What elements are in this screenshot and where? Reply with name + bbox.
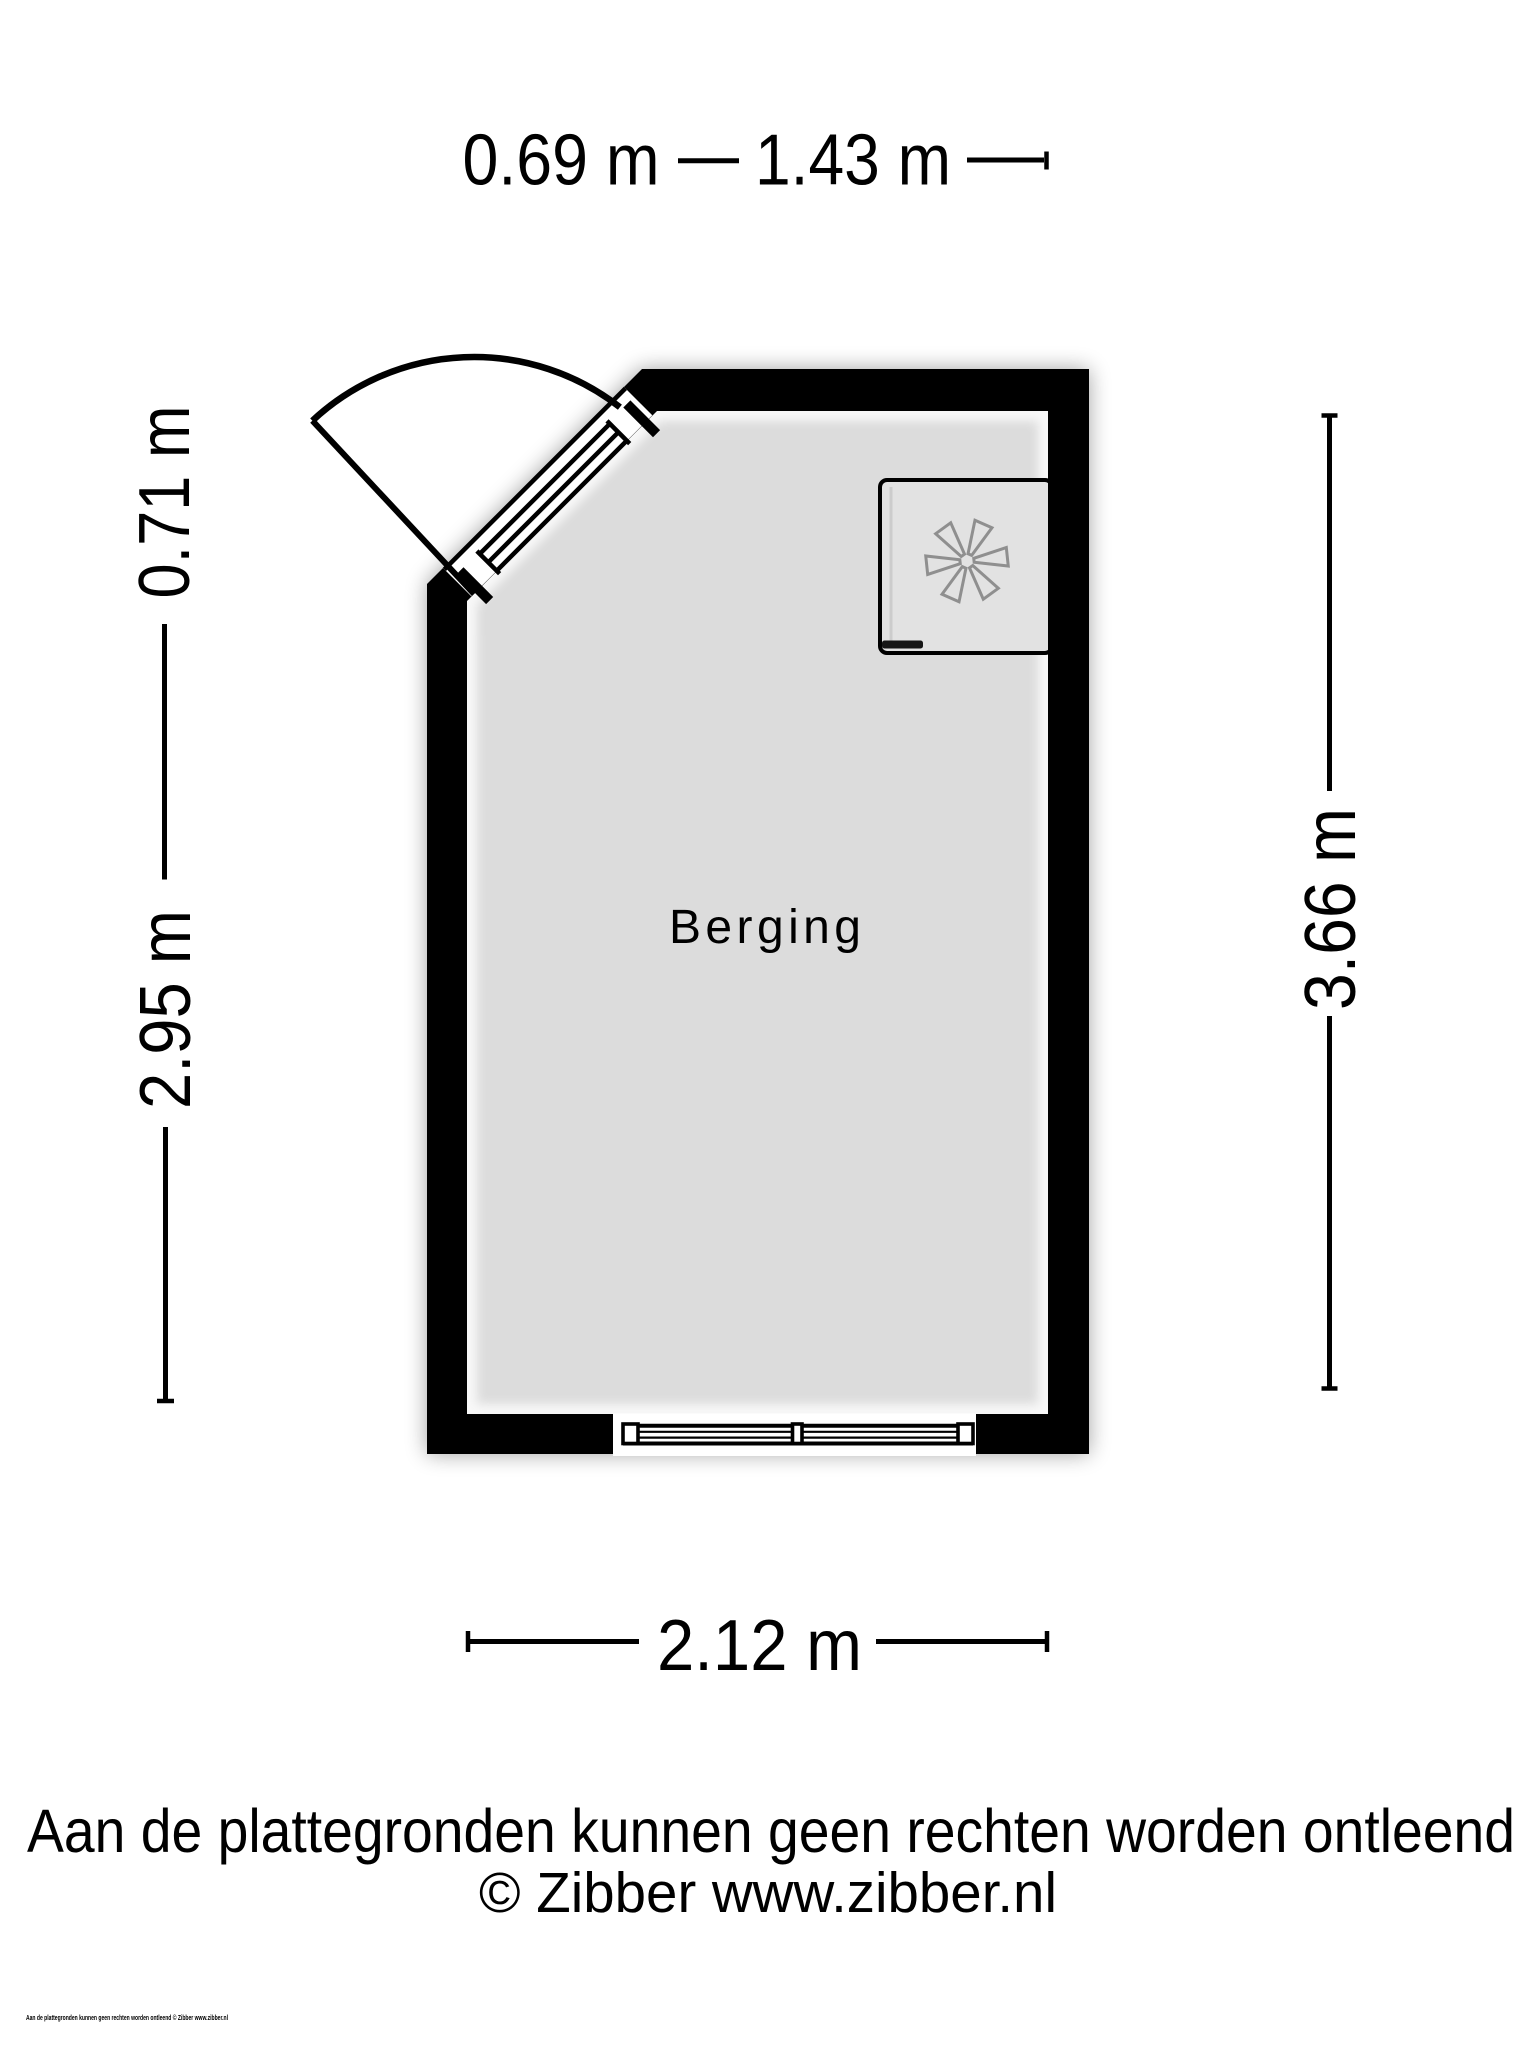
svg-text:3.66 m: 3.66 m bbox=[1291, 808, 1371, 1010]
svg-text:Aan de plattegronden kunnen ge: Aan de plattegronden kunnen geen rechten… bbox=[27, 1797, 1515, 1865]
svg-text:Aan de plattegronden kunnen ge: Aan de plattegronden kunnen geen rechten… bbox=[26, 2013, 228, 2022]
svg-text:0.71 m: 0.71 m bbox=[125, 406, 205, 599]
svg-text:1.43 m: 1.43 m bbox=[755, 121, 951, 201]
svg-text:2.12 m: 2.12 m bbox=[657, 1606, 862, 1686]
svg-text:2.95 m: 2.95 m bbox=[126, 910, 206, 1109]
svg-text:© Zibber www.zibber.nl: © Zibber www.zibber.nl bbox=[479, 1861, 1057, 1925]
svg-text:0.69 m: 0.69 m bbox=[463, 121, 660, 201]
